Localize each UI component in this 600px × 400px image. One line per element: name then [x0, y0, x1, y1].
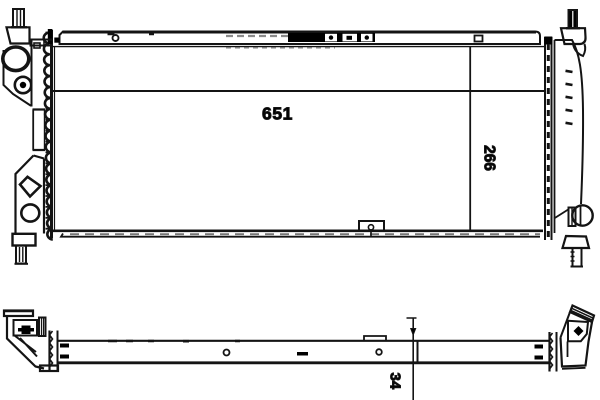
- svg-text:266: 266: [481, 145, 498, 171]
- svg-text:651: 651: [262, 104, 293, 124]
- svg-text:34: 34: [387, 373, 404, 390]
